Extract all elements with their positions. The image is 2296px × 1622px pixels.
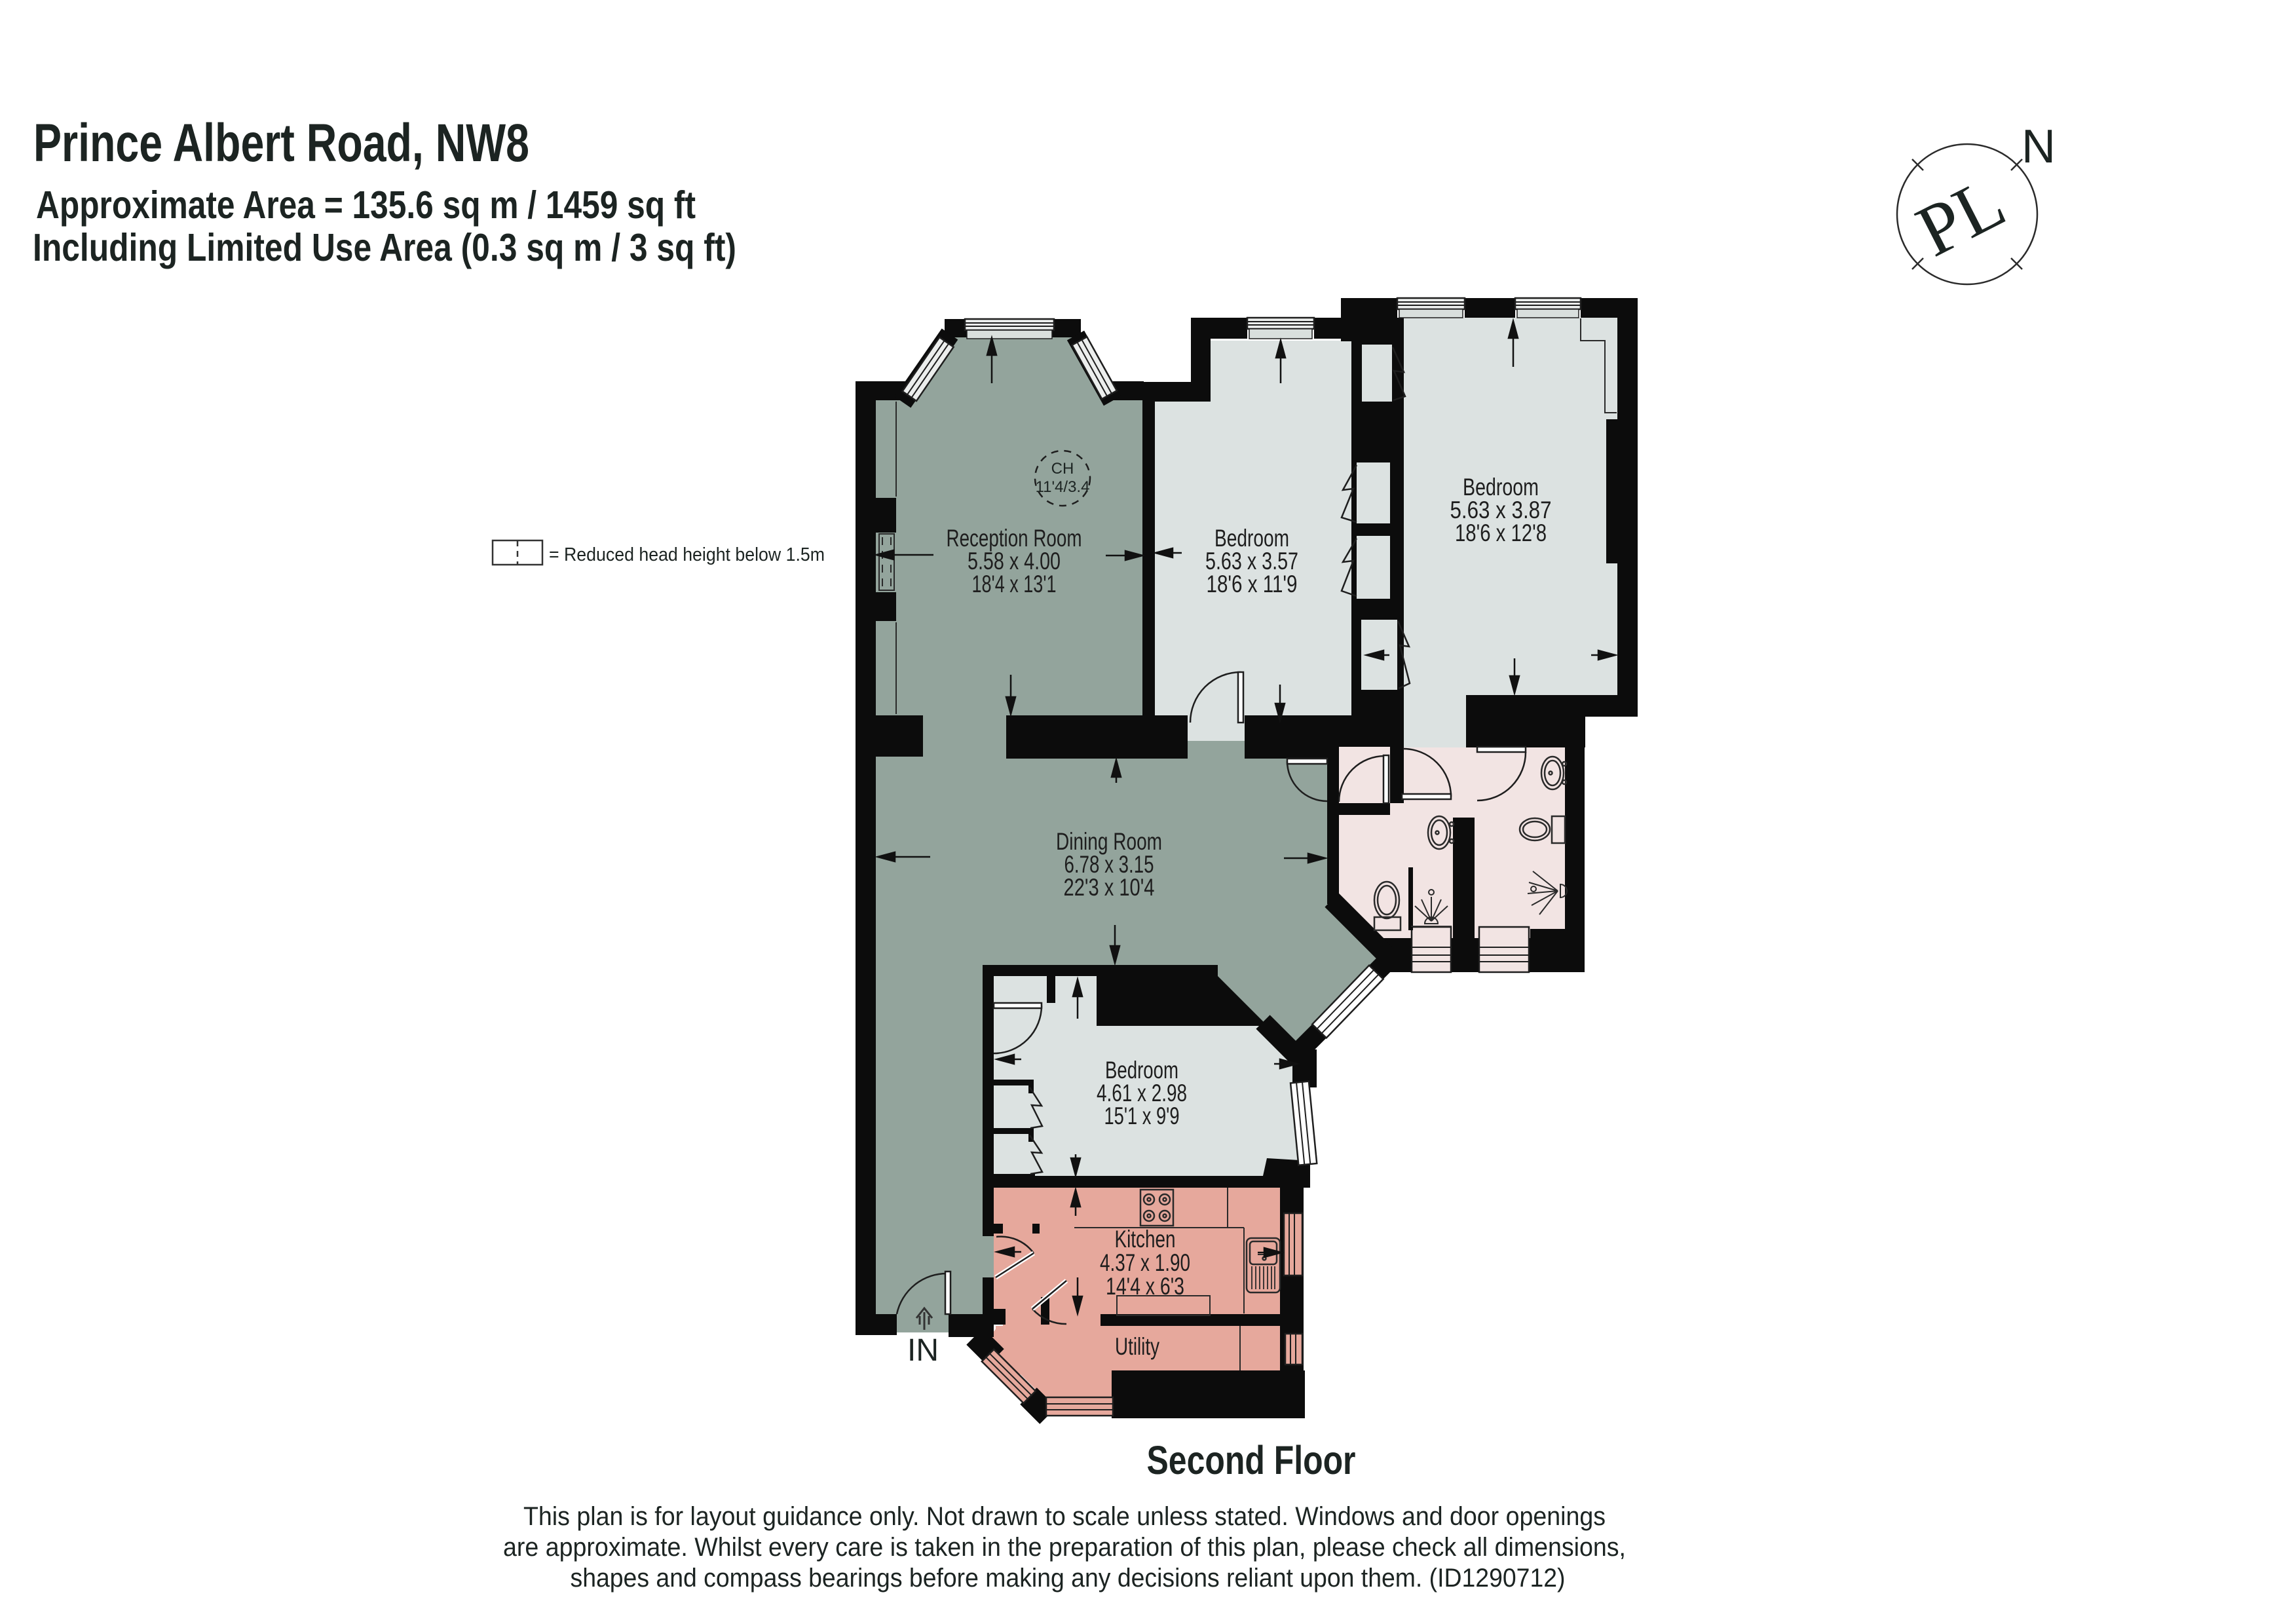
svg-text:11'4/3.4: 11'4/3.4 (1036, 478, 1090, 496)
svg-text:Approximate Area = 135.6 sq m: Approximate Area = 135.6 sq m / 1459 sq … (36, 183, 696, 227)
svg-text:22'3 x 10'4: 22'3 x 10'4 (1064, 874, 1155, 901)
svg-text:CH: CH (1051, 460, 1074, 478)
svg-text:Including Limited Use Area (0.: Including Limited Use Area (0.3 sq m / 3… (33, 226, 736, 269)
svg-text:18'6 x 12'8: 18'6 x 12'8 (1455, 519, 1547, 546)
svg-text:N: N (2022, 121, 2056, 173)
svg-text:= Reduced head height below 1.: = Reduced head height below 1.5m (549, 544, 825, 565)
svg-text:Kitchen: Kitchen (1115, 1226, 1176, 1253)
svg-text:Second Floor: Second Floor (1147, 1438, 1356, 1482)
svg-text:4.37 x 1.90: 4.37 x 1.90 (1100, 1249, 1190, 1276)
svg-text:are approximate. Whilst every: are approximate. Whilst every care is ta… (503, 1533, 1626, 1562)
svg-text:18'4 x 13'1: 18'4 x 13'1 (972, 571, 1057, 597)
svg-text:This plan is for layout guidan: This plan is for layout guidance only. N… (523, 1502, 1606, 1531)
svg-text:18'6 x 11'9: 18'6 x 11'9 (1207, 571, 1298, 597)
svg-text:Utility: Utility (1115, 1333, 1159, 1360)
svg-text:IN: IN (907, 1333, 939, 1368)
svg-text:Prince Albert Road, NW8: Prince Albert Road, NW8 (33, 113, 529, 173)
svg-text:14'4 x 6'3: 14'4 x 6'3 (1106, 1273, 1184, 1300)
svg-text:shapes and compass bearings be: shapes and compass bearings before makin… (571, 1564, 1566, 1593)
svg-text:15'1 x 9'9: 15'1 x 9'9 (1104, 1103, 1180, 1129)
